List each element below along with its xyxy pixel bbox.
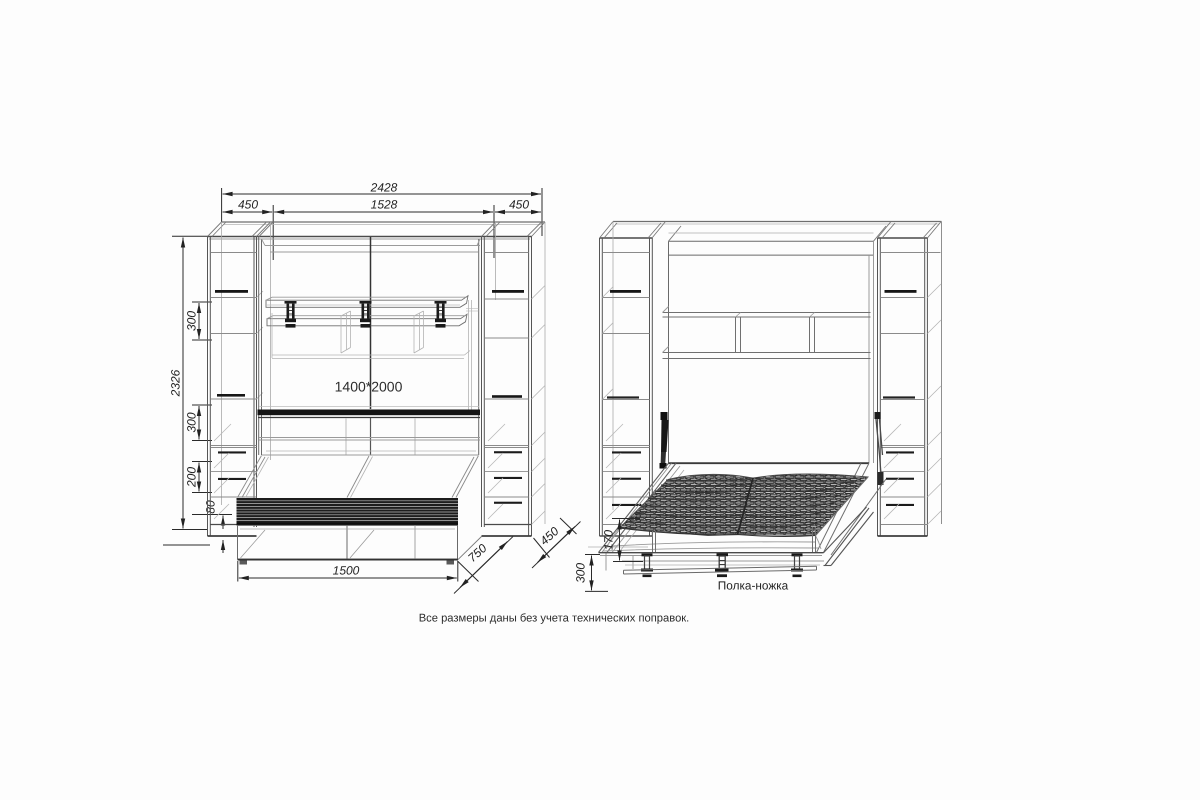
svg-text:170: 170: [602, 530, 616, 550]
svg-text:450: 450: [509, 198, 529, 212]
svg-text:1400*2000: 1400*2000: [335, 379, 403, 395]
svg-text:450: 450: [238, 198, 258, 212]
svg-text:1528: 1528: [371, 198, 398, 212]
svg-text:300: 300: [574, 563, 588, 583]
svg-text:200: 200: [185, 467, 199, 488]
svg-text:1500: 1500: [333, 564, 360, 578]
svg-text:300: 300: [185, 311, 199, 331]
svg-text:2428: 2428: [370, 181, 398, 195]
svg-text:Полка-ножка: Полка-ножка: [718, 579, 789, 593]
svg-text:Все размеры даны без учета тех: Все размеры даны без учета технических п…: [419, 613, 690, 625]
svg-text:300: 300: [185, 412, 199, 432]
svg-text:2326: 2326: [169, 369, 183, 397]
